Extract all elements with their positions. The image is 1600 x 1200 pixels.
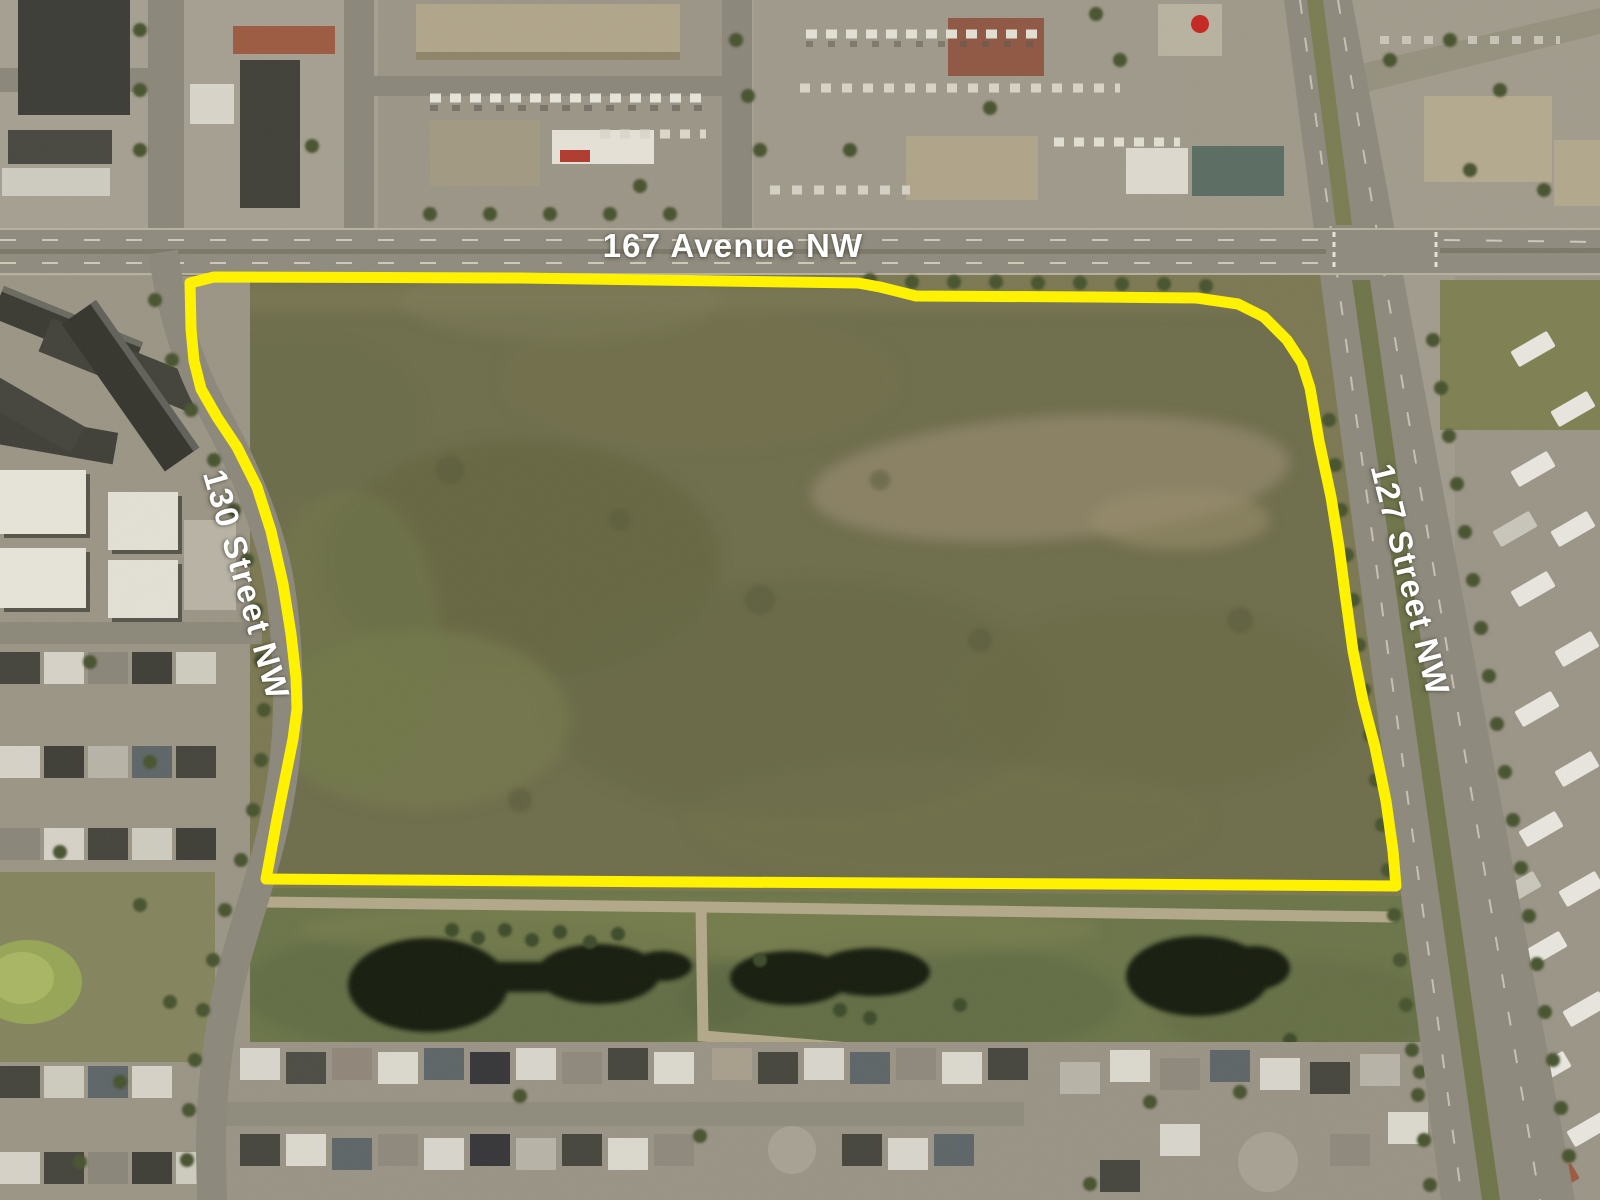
photo-grain-overlay	[0, 0, 1600, 1200]
aerial-scene	[0, 0, 1600, 1200]
aerial-map-canvas: 167 Avenue NW 130 Street NW 127 Street N…	[0, 0, 1600, 1200]
